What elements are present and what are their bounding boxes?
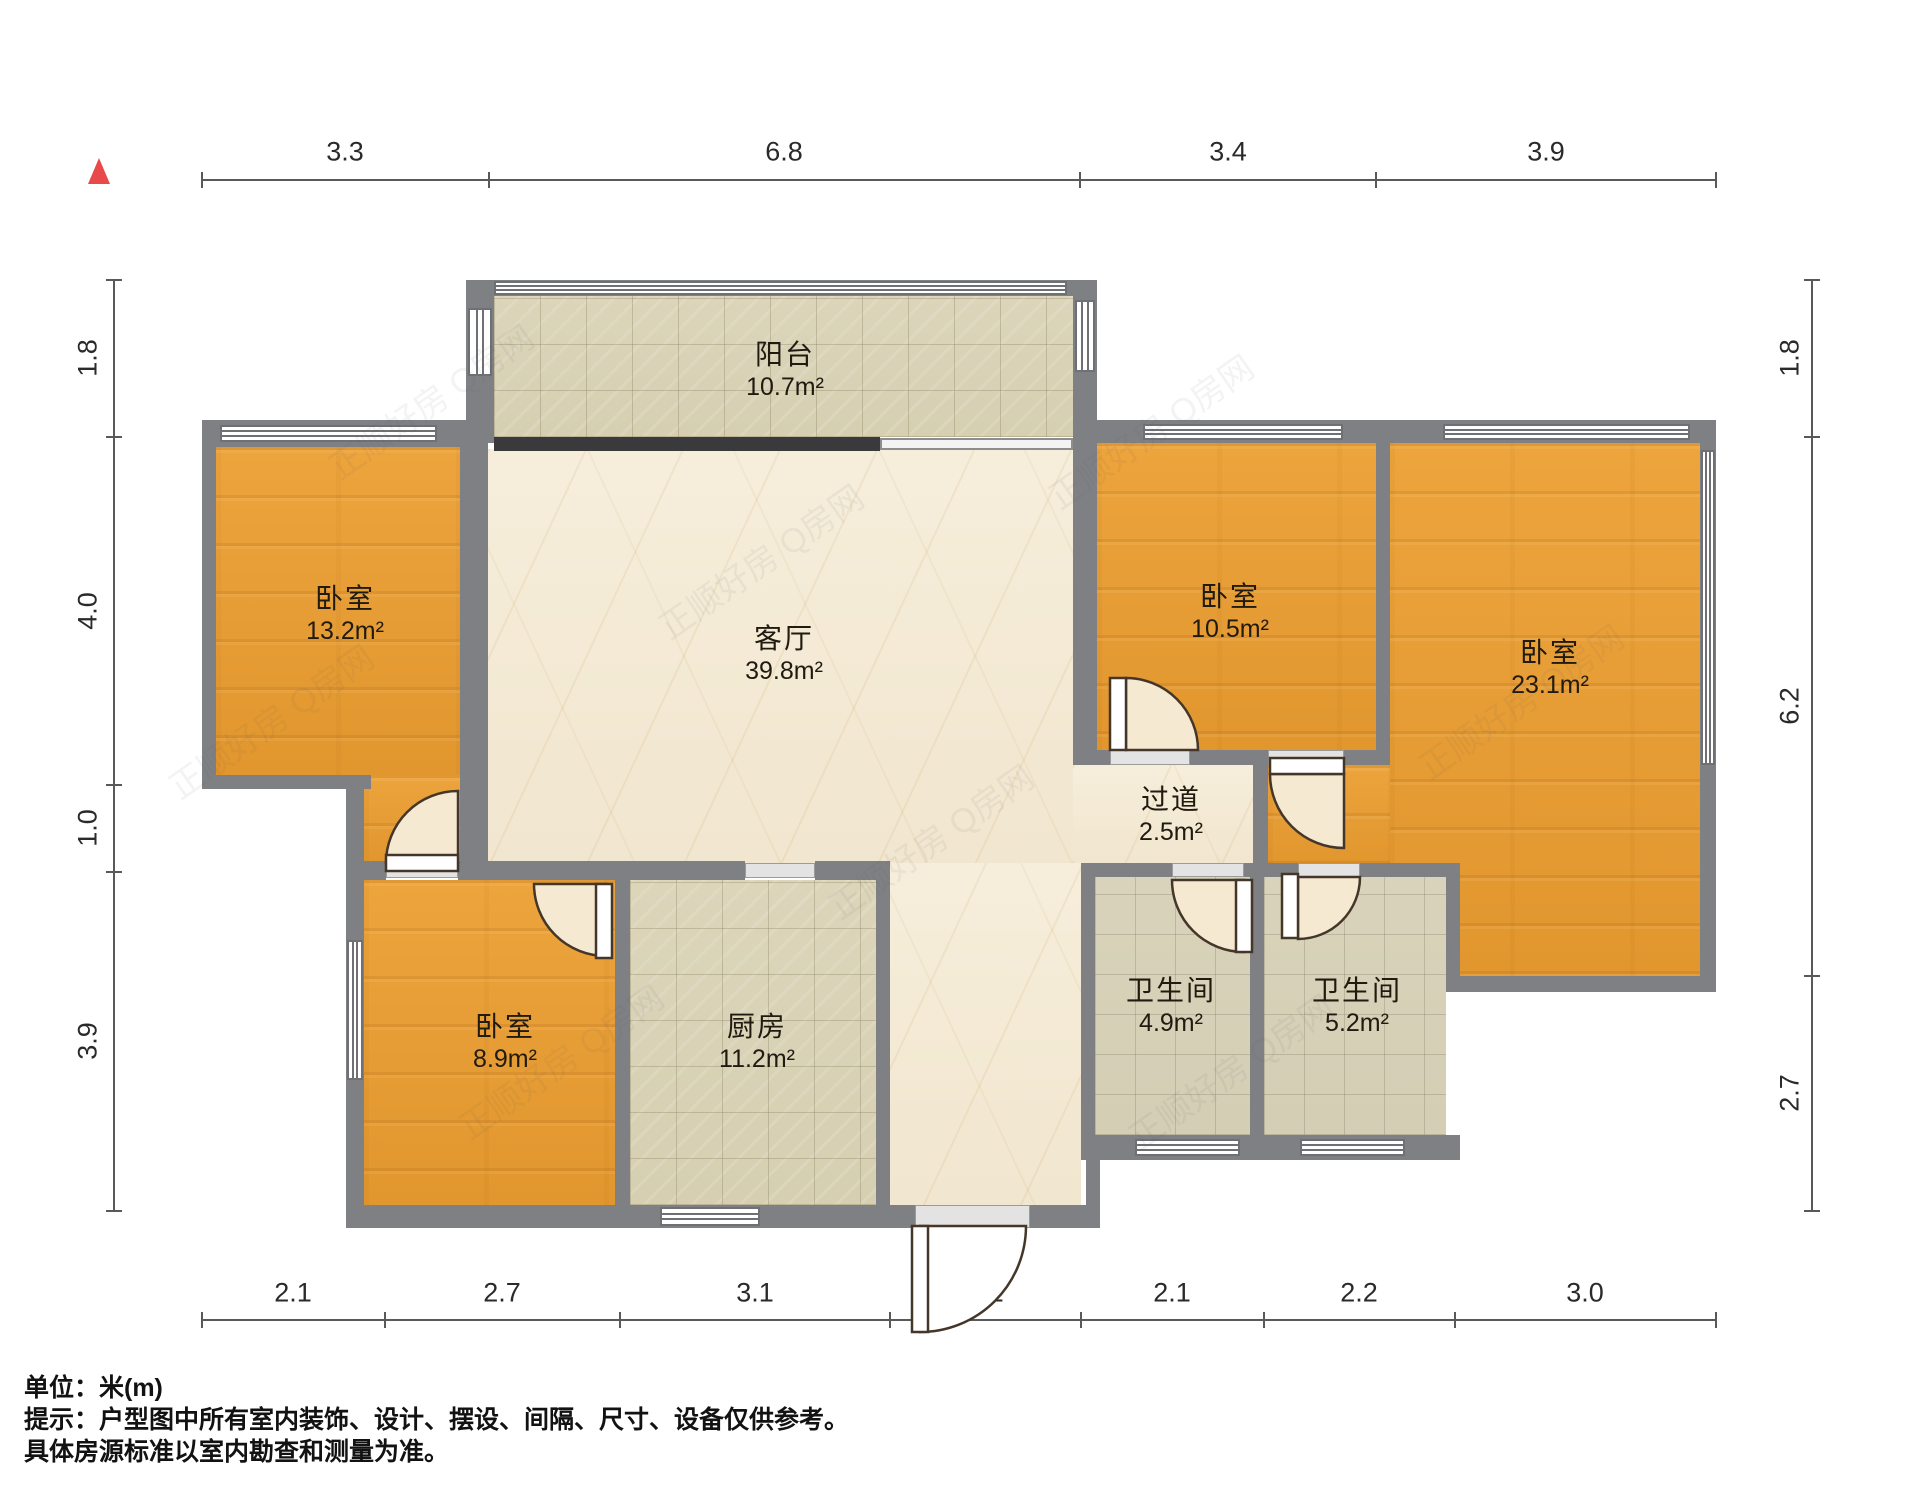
label-hallway-name: 过道 [1139,782,1203,817]
door-arc-entry [920,1226,1026,1332]
label-bedroom-bottom-name: 卧室 [473,1009,537,1044]
door-swing-layer [0,0,1920,1500]
door-leaf-bedroom-right [1270,758,1344,774]
label-bathroom-2-area: 5.2m² [1312,1008,1402,1039]
floor-plan-canvas: 阳台 10.7m² 卧室 13.2m² 客厅 39.8m² 卧室 10.5m² … [0,0,1920,1500]
label-bedroom-bottom: 卧室 8.9m² [473,1009,537,1075]
label-bedroom-right-name: 卧室 [1511,635,1589,670]
label-bedroom-mid-name: 卧室 [1191,579,1269,614]
label-hallway: 过道 2.5m² [1139,782,1203,848]
label-bathroom-1-name: 卫生间 [1126,973,1216,1008]
label-bathroom-1: 卫生间 4.9m² [1126,973,1216,1039]
label-bedroom-right: 卧室 23.1m² [1511,635,1589,701]
door-arc-bedroom-left [386,791,458,863]
label-living-room-area: 39.8m² [745,656,823,687]
label-bathroom-2: 卫生间 5.2m² [1312,973,1402,1039]
footer-unit-note: 单位：米(m) [24,1368,163,1404]
label-living-room-name: 客厅 [745,621,823,656]
label-bedroom-mid: 卧室 10.5m² [1191,579,1269,645]
label-balcony-area: 10.7m² [746,372,824,403]
door-arc-bathroom-2 [1298,877,1360,939]
north-indicator-icon [88,158,110,184]
label-kitchen-name: 厨房 [719,1009,795,1044]
label-kitchen-area: 11.2m² [719,1044,795,1075]
label-hallway-area: 2.5m² [1139,817,1203,848]
door-arc-bedroom-mid [1126,678,1198,750]
label-kitchen: 厨房 11.2m² [719,1009,795,1075]
door-leaf-bathroom-2 [1282,874,1298,938]
door-leaf-bedroom-mid [1110,678,1126,750]
door-leaf-bedroom-bottom [596,884,612,958]
label-bathroom-2-name: 卫生间 [1312,973,1402,1008]
label-bathroom-1-area: 4.9m² [1126,1008,1216,1039]
label-bedroom-left: 卧室 13.2m² [306,581,384,647]
label-balcony: 阳台 10.7m² [746,337,824,403]
door-leaf-bedroom-left [386,855,458,871]
label-bedroom-bottom-area: 8.9m² [473,1044,537,1075]
door-arc-bathroom-1 [1172,880,1244,952]
door-leaf-entry [912,1226,928,1332]
footer-disclaimer-2: 具体房源标准以室内勘查和测量为准。 [24,1432,449,1468]
label-balcony-name: 阳台 [746,337,824,372]
label-bedroom-left-area: 13.2m² [306,616,384,647]
label-bedroom-right-area: 23.1m² [1511,670,1589,701]
label-bedroom-left-name: 卧室 [306,581,384,616]
label-bedroom-mid-area: 10.5m² [1191,614,1269,645]
footer-disclaimer-1: 提示：户型图中所有室内装饰、设计、摆设、间隔、尺寸、设备仅供参考。 [24,1400,849,1436]
door-arc-bedroom-right [1270,774,1344,848]
door-leaf-bathroom-1 [1236,880,1252,952]
label-living-room: 客厅 39.8m² [745,621,823,687]
